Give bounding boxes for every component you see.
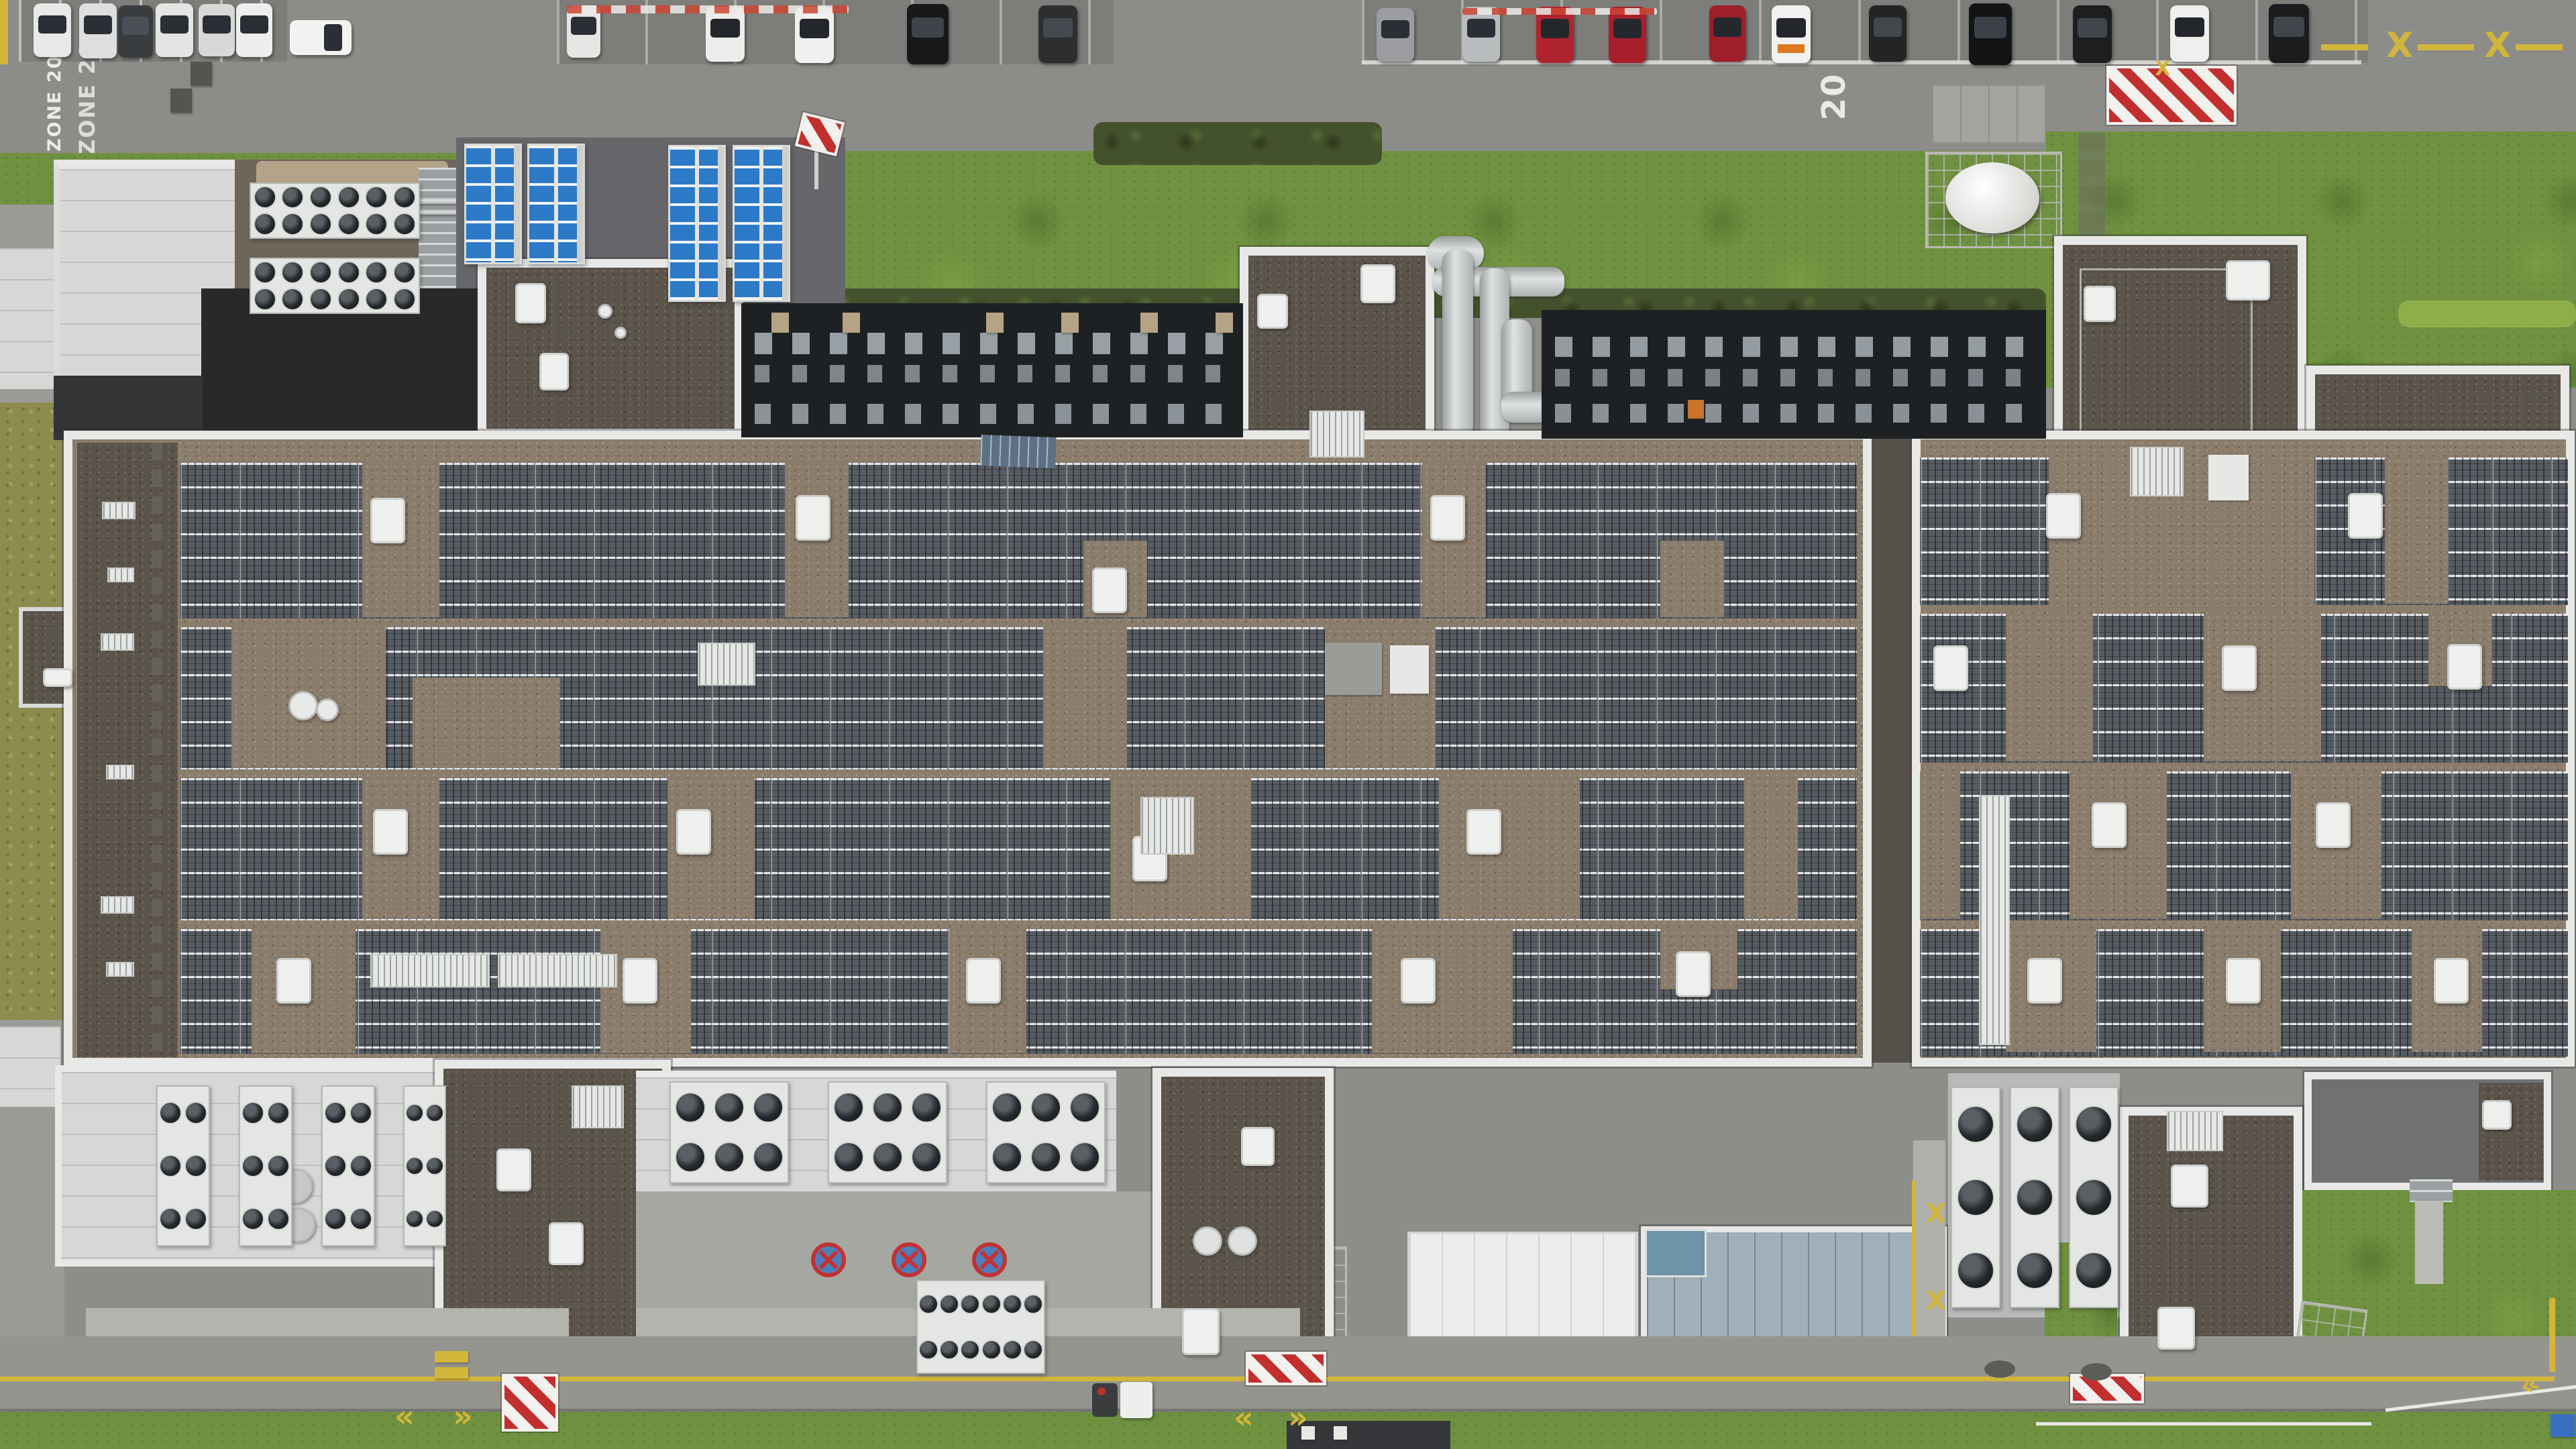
fan: [254, 261, 276, 284]
parked-car: [1038, 5, 1077, 63]
fan: [833, 1142, 864, 1173]
fan: [1069, 1142, 1100, 1173]
hvac-fan-bank: [156, 1085, 210, 1246]
parked-car: [236, 3, 272, 57]
fan: [960, 1340, 980, 1360]
roof-gravel-gap: [1660, 541, 1724, 617]
car-windshield: [1776, 18, 1806, 38]
gray-roof-gravel-patch: [2479, 1083, 2543, 1181]
fan: [872, 1092, 903, 1123]
fan: [1030, 1142, 1061, 1173]
utility-cart: [1092, 1382, 1152, 1418]
yellow-x-marking: X: [2149, 56, 2176, 83]
fan: [939, 1340, 959, 1360]
skylight: [1466, 809, 1501, 855]
roof-equipment-box: [2208, 455, 2249, 500]
fan: [1957, 1106, 1994, 1143]
skylight-row: [755, 365, 1230, 382]
yellow-arrow-marking: »: [1275, 1402, 1322, 1433]
car-windshield: [1713, 17, 1741, 37]
round-vent: [1228, 1226, 1257, 1256]
skylight: [2226, 260, 2270, 301]
parking-edge-line: [1362, 60, 2361, 64]
fan: [1023, 1340, 1043, 1360]
louver-vent-box: [101, 633, 134, 651]
blue-solar-rack: [733, 145, 790, 302]
fan: [393, 288, 416, 311]
fan: [337, 186, 360, 209]
fan: [184, 1207, 207, 1230]
louver-vent-box: [106, 962, 134, 977]
fan: [911, 1092, 942, 1123]
fan: [981, 1294, 1002, 1314]
fan: [159, 1207, 182, 1230]
fan: [281, 213, 304, 235]
roof-equipment-box: [435, 1351, 468, 1362]
fan: [365, 288, 388, 311]
car-windshield: [1613, 19, 1642, 38]
car-windshield: [2175, 17, 2204, 37]
skylight: [539, 353, 569, 390]
fan: [991, 1092, 1022, 1123]
roof-gravel-gap: [1043, 627, 1127, 768]
parked-car: [2170, 5, 2209, 62]
skylight: [2171, 1165, 2208, 1207]
blue-solar-rack: [668, 145, 726, 302]
car-windshield: [571, 17, 596, 35]
fan: [2075, 1106, 2112, 1143]
parked-car: [290, 20, 352, 55]
roof-equipment-box: [1140, 313, 1158, 333]
louver-vent-box: [1309, 411, 1364, 458]
car-windshield: [1467, 19, 1496, 38]
skylight: [43, 668, 72, 687]
fan: [753, 1092, 784, 1123]
louver-vent-box: [2130, 447, 2184, 496]
zone-20-road-marking: ZONE 20: [44, 76, 68, 152]
car-windshield: [1381, 20, 1410, 38]
skylight: [2434, 958, 2469, 1004]
skylight: [2482, 1100, 2512, 1130]
fan: [2075, 1179, 2112, 1216]
roof-equipment-box: [843, 313, 860, 333]
skylight: [2027, 958, 2062, 1004]
skylight: [623, 958, 657, 1004]
solar-array-band-5: [1920, 458, 2049, 605]
hvac-fan-bank: [250, 182, 420, 239]
roof-paver-path: [152, 443, 162, 1055]
parked-car: [156, 3, 193, 57]
louver-vent-box: [1979, 795, 2010, 1045]
louver-vent-box: [102, 502, 136, 519]
fan: [833, 1092, 864, 1123]
yellow-dash-marking: [2321, 44, 2368, 50]
fan: [393, 213, 416, 235]
skylight: [515, 283, 546, 323]
round-vent: [316, 698, 339, 721]
fan: [324, 1207, 347, 1230]
skylight: [2157, 1307, 2195, 1350]
round-vent: [1193, 1226, 1222, 1256]
fan: [1069, 1092, 1100, 1123]
bright-hedge-right: [2398, 301, 2576, 327]
fan: [267, 1102, 290, 1124]
fan: [184, 1155, 207, 1177]
fan: [159, 1155, 182, 1177]
hvac-fan-bank: [916, 1280, 1045, 1374]
parked-car: [1536, 7, 1574, 63]
fan: [309, 288, 332, 311]
rear-path: [2415, 1201, 2443, 1284]
louver-vent-box: [1140, 797, 1194, 855]
fan: [675, 1142, 706, 1173]
fan: [241, 1102, 264, 1124]
roof-gravel-gap: [1920, 771, 1960, 919]
car-windshield: [122, 17, 149, 35]
fan: [1023, 1294, 1043, 1314]
roof-equipment-box: [1216, 313, 1233, 333]
hvac-fan-bank: [250, 258, 420, 314]
fan: [1002, 1340, 1022, 1360]
roof-gravel-gap: [2006, 614, 2093, 761]
fan: [241, 1155, 264, 1177]
hvac-fan-bank: [2010, 1087, 2059, 1308]
fan: [365, 186, 388, 209]
skylight-row: [755, 333, 1230, 354]
yellow-arrow-marking: »: [439, 1401, 486, 1432]
fan: [241, 1207, 264, 1230]
car-windshield: [38, 15, 67, 34]
sidewalk-1: [86, 1308, 569, 1338]
skylight-row: [1555, 337, 2033, 357]
road-manhole: [1984, 1360, 2015, 1378]
parked-car: [118, 5, 153, 58]
skylight: [1241, 1127, 1275, 1166]
roof-equipment-box: [2551, 1414, 2575, 1437]
fan: [159, 1102, 182, 1124]
parked-car: [1869, 5, 1907, 62]
skylight: [1676, 951, 1711, 997]
fan: [281, 186, 304, 209]
car-windshield: [324, 24, 343, 51]
skylight: [373, 809, 408, 855]
fan: [350, 1207, 372, 1230]
skylight-row: [755, 404, 1230, 424]
fan: [939, 1294, 959, 1314]
yellow-curb-line: [0, 0, 8, 64]
fan: [2016, 1252, 2053, 1289]
fan: [425, 1104, 444, 1122]
yellow-arrow-marking: «: [381, 1401, 428, 1432]
fan: [337, 213, 360, 235]
roof-gravel-gap: [1372, 929, 1513, 1053]
fan: [425, 1157, 444, 1175]
parked-car: [1462, 7, 1500, 62]
hvac-fan-bank: [403, 1085, 446, 1246]
car-windshield: [912, 17, 943, 38]
white-railing-1: [2036, 1422, 2371, 1426]
louver-vent-box: [101, 896, 134, 914]
skylight: [2226, 958, 2261, 1004]
yellow-dash-marking: [2549, 1298, 2555, 1372]
fan: [254, 186, 276, 209]
tree-row-entrance: [1093, 122, 1382, 165]
fan: [254, 288, 276, 311]
fan: [365, 261, 388, 284]
fan: [393, 261, 416, 284]
car-windshield: [800, 19, 829, 38]
parked-car: [2269, 4, 2309, 63]
road-manhole: [2081, 1363, 2112, 1381]
skylight: [496, 1148, 531, 1191]
hvac-fan-bank: [828, 1081, 947, 1183]
roof-gravel-gap: [2204, 614, 2321, 761]
car-windshield: [160, 15, 189, 34]
fan: [2016, 1179, 2053, 1216]
skylight: [2092, 802, 2127, 848]
car-windshield: [203, 15, 230, 34]
skylight: [1360, 264, 1395, 303]
parked-car: [1709, 5, 1746, 62]
car-windshield: [2078, 18, 2107, 38]
fan: [425, 1210, 444, 1228]
fan: [918, 1294, 938, 1314]
louver-vent-box: [572, 1085, 624, 1128]
fan: [337, 261, 360, 284]
blue-solar-rack: [527, 144, 585, 264]
skylight: [370, 498, 405, 543]
fan: [324, 1102, 347, 1124]
wing-divider-shadow: [1872, 435, 1913, 1063]
roof-gravel-gap: [2385, 458, 2449, 604]
skylight: [966, 958, 1001, 1004]
yellow-x-marking: X: [1920, 1198, 1952, 1230]
roof-equipment-box: [1688, 400, 1704, 419]
car-windshield: [710, 19, 740, 38]
parked-car: [907, 4, 949, 64]
fan: [405, 1157, 424, 1175]
skylight: [1430, 495, 1465, 541]
skylight: [2046, 493, 2081, 539]
roof-equipment-box: [1325, 643, 1382, 695]
car-windshield: [1043, 18, 1073, 38]
round-vent: [614, 327, 627, 339]
roof-equipment-box: [170, 89, 192, 113]
skylight: [2348, 493, 2383, 539]
skylight: [796, 495, 830, 541]
roof-gravel-gap: [413, 678, 560, 768]
fan: [184, 1102, 207, 1124]
fan: [1030, 1092, 1061, 1123]
louver-vent-box: [107, 568, 134, 582]
fan: [309, 186, 332, 209]
roof-gravel-gap: [1439, 778, 1580, 919]
skylight: [1257, 294, 1288, 329]
fan: [753, 1142, 784, 1173]
blue-solar-rack: [464, 144, 522, 264]
barrier-tape: [1462, 8, 1657, 15]
fan: [393, 186, 416, 209]
yellow-x-marking: X: [1920, 1285, 1952, 1318]
roof-equipment-box: [1390, 645, 1429, 694]
fan: [714, 1092, 745, 1123]
louver-vent-box: [698, 643, 755, 686]
aerial-photograph: ZONE 20 ZONE 20 20: [0, 0, 2576, 1449]
striped-barrier-sign: [2070, 1374, 2144, 1403]
fan: [365, 213, 388, 235]
skylight: [1401, 958, 1436, 1004]
duct-vertical-1: [1442, 250, 1473, 439]
fan: [911, 1142, 942, 1173]
parked-car: [199, 4, 235, 56]
fan: [267, 1207, 290, 1230]
hvac-fan-bank: [986, 1081, 1106, 1183]
skylight: [1092, 568, 1127, 613]
car-stripe: [1778, 44, 1805, 52]
path-yellow-line: [1912, 1181, 1915, 1336]
fan: [309, 213, 332, 235]
fan: [872, 1142, 903, 1173]
hvac-fan-bank: [1951, 1087, 2000, 1308]
louver-vent-box: [2167, 1111, 2223, 1151]
fan: [281, 261, 304, 284]
utility-cabinet: [1931, 85, 2046, 144]
fan: [405, 1210, 424, 1228]
skylight: [2447, 644, 2482, 690]
louver-vent-box: [370, 954, 490, 987]
roof-gravel-gap: [1744, 778, 1798, 919]
fan: [350, 1102, 372, 1124]
fan: [254, 213, 276, 235]
roof-equipment-box: [771, 313, 789, 333]
left-lower-roof: [0, 1026, 60, 1107]
hvac-fan-bank: [2069, 1087, 2118, 1308]
car-windshield: [1541, 19, 1570, 38]
yellow-dash-marking: [2516, 44, 2563, 50]
no-stopping-road-marking: [892, 1242, 926, 1277]
yellow-arrow-marking: «: [1220, 1402, 1267, 1433]
fan: [675, 1092, 706, 1123]
car-windshield: [1874, 17, 1902, 37]
barrier-tape: [567, 5, 849, 13]
skylight: [676, 809, 711, 855]
round-vent: [288, 691, 318, 720]
skylight: [2222, 645, 2257, 691]
left-white-roof: [0, 248, 62, 389]
parked-car: [1609, 7, 1646, 63]
fan: [960, 1294, 980, 1314]
fan: [267, 1155, 290, 1177]
fan: [2016, 1106, 2053, 1143]
fan: [2075, 1252, 2112, 1289]
no-stopping-road-marking: [811, 1242, 846, 1277]
striped-barrier-sign: [502, 1374, 558, 1432]
fan: [991, 1142, 1022, 1173]
parked-car: [1377, 8, 1414, 62]
yellow-x-marking: X: [2379, 25, 2420, 67]
roof-equipment-box: [1061, 313, 1079, 333]
striped-barrier-sign: [1246, 1352, 1326, 1385]
fan: [981, 1340, 1002, 1360]
fan: [1002, 1294, 1022, 1314]
fan: [337, 288, 360, 311]
hvac-fan-bank: [669, 1081, 789, 1183]
hvac-fan-bank: [239, 1085, 292, 1246]
solar-array-band-8: [1920, 771, 2568, 920]
roof-equipment-box: [986, 313, 1004, 333]
rear-stair: [2410, 1179, 2453, 1202]
fan: [1957, 1179, 1994, 1216]
louver-vent-box: [106, 765, 134, 780]
skylight: [1933, 645, 1968, 691]
zone-20-road-marking-2: ZONE 20: [74, 72, 103, 155]
skylight-row: [1555, 369, 2033, 386]
parked-car: [1969, 3, 2012, 65]
parked-car: [795, 7, 834, 63]
skylight: [549, 1222, 584, 1265]
fan: [350, 1155, 372, 1177]
fan: [714, 1142, 745, 1173]
round-vent: [598, 304, 612, 319]
parked-car: [706, 7, 745, 62]
tilted-solar-panel: [980, 435, 1057, 468]
skylight: [2084, 286, 2116, 322]
yellow-dash-marking: [2418, 44, 2474, 50]
skylight: [1182, 1308, 1220, 1355]
fan: [281, 288, 304, 311]
parked-car: [1772, 5, 1811, 63]
louver-vent-box: [498, 954, 617, 987]
car-windshield: [2273, 17, 2304, 37]
fan: [405, 1104, 424, 1122]
white-tank: [1945, 162, 2039, 233]
roof-equipment-box: [191, 62, 212, 86]
skylight: [276, 958, 311, 1004]
parked-car: [2073, 5, 2112, 63]
yellow-x-marking: X: [2477, 25, 2518, 67]
no-stopping-road-marking: [972, 1242, 1007, 1277]
hvac-fan-bank: [321, 1085, 375, 1246]
fan: [309, 261, 332, 284]
roof-equipment-box: [1334, 1426, 1347, 1440]
fan: [324, 1155, 347, 1177]
fan: [918, 1340, 938, 1360]
skylight-row: [1555, 404, 2033, 423]
skylight: [2316, 802, 2351, 848]
glass-corner: [1645, 1229, 1707, 1277]
car-windshield: [84, 15, 113, 34]
roof-equipment-box: [435, 1367, 468, 1379]
parked-car: [34, 3, 71, 57]
car-windshield: [240, 15, 268, 34]
car-windshield: [1974, 17, 2007, 38]
speed-20-road-marking: 20: [1815, 59, 1850, 134]
fan: [1957, 1252, 1994, 1289]
parked-car: [79, 3, 117, 58]
